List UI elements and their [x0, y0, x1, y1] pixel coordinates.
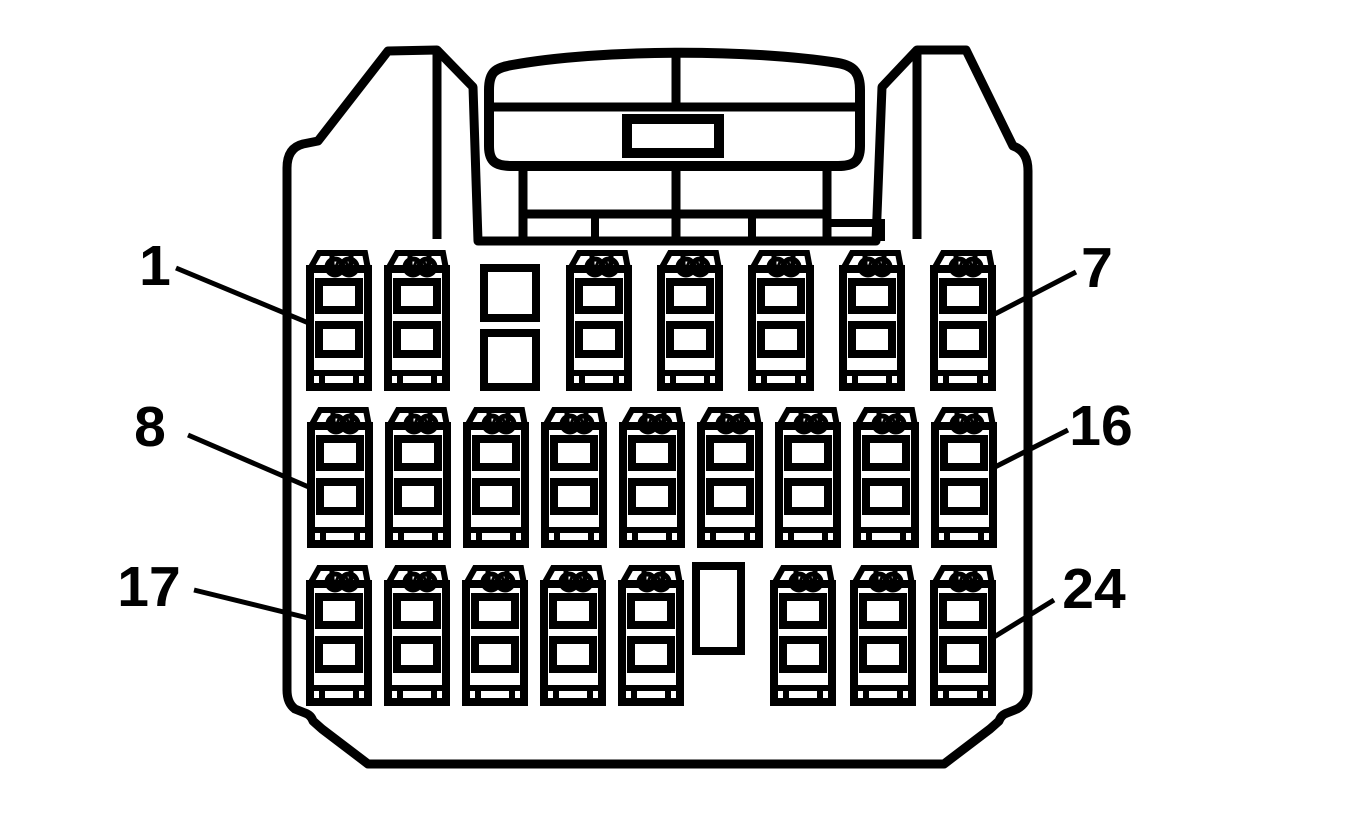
keyway-vertical-slot — [696, 566, 741, 651]
keyway-square-upper — [484, 268, 536, 318]
latch-button — [627, 119, 719, 153]
callout-label-pin24: 24 — [1062, 557, 1126, 621]
callout-label-pin17: 17 — [117, 555, 180, 619]
callout-label-pin7: 7 — [1081, 236, 1113, 300]
keyway-square-lower — [484, 333, 536, 387]
callout-label-pin8: 8 — [134, 395, 166, 459]
connector-diagram-svg: 1 7 8 16 17 24 — [0, 0, 1355, 827]
callout-label-pin16: 16 — [1069, 394, 1132, 458]
connector-diagram: 1 7 8 16 17 24 — [0, 0, 1355, 827]
callout-label-pin1: 1 — [139, 234, 171, 298]
latch-base — [523, 166, 881, 241]
